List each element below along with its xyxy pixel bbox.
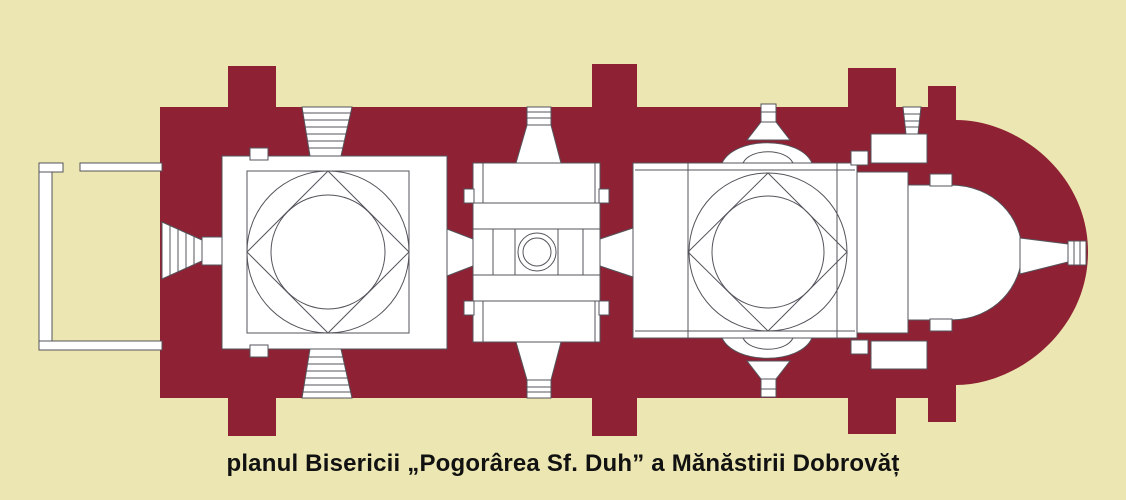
apse-niche-south [930,319,952,331]
plan-caption: planul Bisericii „Pogorârea Sf. Duh” a M… [0,450,1126,478]
niche-west-south [464,301,474,315]
porch-wall-south [39,341,162,350]
buttress-north-east [848,68,896,108]
altar-niche-north-west [851,151,868,165]
apse-niche-north [930,174,952,186]
buttress-south-east [848,397,896,434]
diaconicon-annex-south [871,341,927,369]
buttress-north-west [228,66,276,108]
church-plan-figure: planul Bisericii „Pogorârea Sf. Duh” a M… [0,0,1126,500]
porch-wall-north-a [39,163,63,172]
proscomidia-annex-north [871,134,927,163]
altar-niche-south-west [851,340,868,354]
naos-room [633,163,857,338]
apse-shoulder-south [928,398,956,422]
narthex-niche-north [250,148,268,160]
porch-wall-west [39,163,52,349]
niche-east-south [599,301,609,315]
niche-east-north [599,189,609,203]
narthex-niche-south [250,345,268,357]
altar-bay [857,172,908,333]
buttress-south-middle [592,397,637,436]
buttress-north-middle [592,64,637,108]
niche-west-north [464,189,474,203]
west-porch-outline [39,163,162,350]
buttress-south-west [228,397,276,436]
stair-turret-north [903,107,921,134]
portal-doorway [202,237,223,265]
narthex-room [222,156,447,349]
apse-shoulder-north [928,86,956,108]
burial-chamber-room [473,163,600,342]
floor-plan-drawing [0,0,1126,500]
porch-wall-north-b [80,163,162,171]
